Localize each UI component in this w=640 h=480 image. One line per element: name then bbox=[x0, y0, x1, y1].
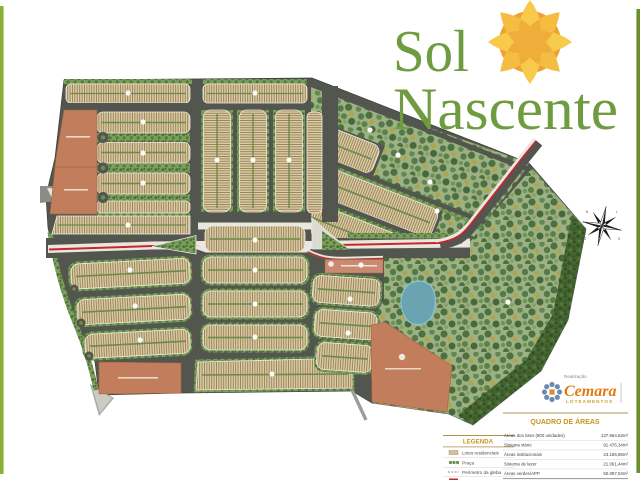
svg-text:Áreas dos lotes (800 unidades): Áreas dos lotes (800 unidades) bbox=[504, 433, 565, 438]
svg-text:91.476,34m²: 91.476,34m² bbox=[603, 443, 628, 448]
svg-text:Lotes residenciais: Lotes residenciais bbox=[462, 451, 499, 456]
svg-text:50.087,04m²: 50.087,04m² bbox=[603, 471, 628, 476]
svg-text:S: S bbox=[618, 237, 620, 241]
svg-text:Perímetro da gleba: Perímetro da gleba bbox=[462, 470, 502, 475]
svg-text:LOTEAMENTOS: LOTEAMENTOS bbox=[566, 399, 613, 404]
svg-text:Sol: Sol bbox=[393, 18, 469, 84]
svg-text:Sistema viário: Sistema viário bbox=[504, 443, 532, 448]
svg-text:Cemara: Cemara bbox=[564, 383, 616, 400]
svg-text:21.061,44m²: 21.061,44m² bbox=[603, 462, 628, 467]
svg-text:Nascente: Nascente bbox=[393, 76, 618, 142]
svg-text:23.186,88m²: 23.186,88m² bbox=[603, 452, 628, 457]
svg-text:Praça: Praça bbox=[462, 461, 474, 466]
svg-text:L: L bbox=[616, 210, 618, 214]
svg-text:QUADRO DE ÁREAS: QUADRO DE ÁREAS bbox=[530, 417, 600, 426]
svg-text:Sistema de lazer: Sistema de lazer bbox=[504, 462, 537, 467]
svg-text:Realização: Realização bbox=[564, 374, 587, 379]
svg-text:LEGENDA: LEGENDA bbox=[463, 439, 494, 446]
svg-text:Áreas verdes/APP: Áreas verdes/APP bbox=[504, 471, 540, 476]
svg-text:Áreas institucionais: Áreas institucionais bbox=[504, 452, 543, 457]
svg-text:137.964,63m²: 137.964,63m² bbox=[601, 433, 629, 438]
